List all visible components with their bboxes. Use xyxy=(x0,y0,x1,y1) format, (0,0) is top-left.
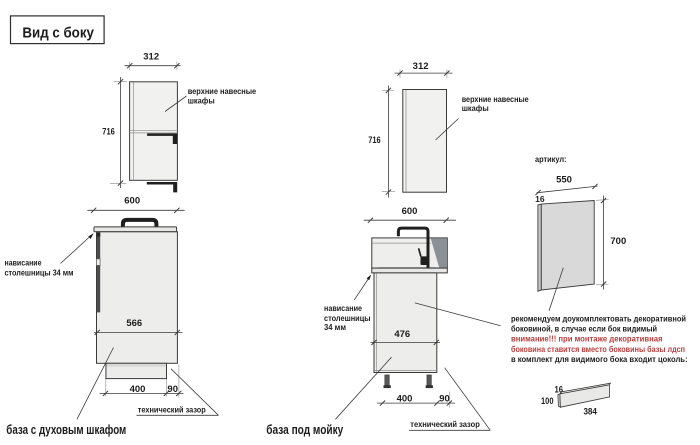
svg-text:рекомендуем доукомплектовать д: рекомендуем доукомплектовать декоративно… xyxy=(511,315,686,324)
svg-text:нависание: нависание xyxy=(324,303,362,313)
svg-text:база под мойку: база под мойку xyxy=(266,423,343,437)
svg-text:Вид с боку: Вид с боку xyxy=(22,25,94,42)
svg-text:312: 312 xyxy=(413,61,429,72)
svg-text:нависание: нависание xyxy=(5,257,42,267)
svg-text:34 мм: 34 мм xyxy=(324,322,346,332)
svg-text:384: 384 xyxy=(583,406,597,417)
svg-text:технический зазор: технический зазор xyxy=(138,405,206,415)
svg-text:шкафы: шкафы xyxy=(462,103,489,113)
svg-text:100: 100 xyxy=(541,396,554,407)
svg-text:шкафы: шкафы xyxy=(188,95,215,105)
svg-text:400: 400 xyxy=(397,394,413,405)
svg-text:столешницы 34 мм: столешницы 34 мм xyxy=(5,268,74,278)
svg-text:476: 476 xyxy=(394,329,410,340)
svg-text:600: 600 xyxy=(402,206,418,217)
svg-text:312: 312 xyxy=(143,51,159,62)
svg-text:600: 600 xyxy=(124,196,140,207)
svg-text:700: 700 xyxy=(610,236,626,247)
svg-text:внимание!!! при монтаже декора: внимание!!! при монтаже декоративная xyxy=(511,335,663,344)
svg-text:400: 400 xyxy=(130,384,146,395)
svg-text:550: 550 xyxy=(556,175,572,186)
svg-text:566: 566 xyxy=(126,318,142,329)
svg-text:боковина ставится вместо боков: боковина ставится вместо боковины базы л… xyxy=(511,345,685,354)
svg-text:в комплект для видимого бока в: в комплект для видимого бока входит цоко… xyxy=(511,355,688,364)
svg-text:716: 716 xyxy=(368,135,381,146)
svg-text:артикул:: артикул: xyxy=(535,154,567,164)
svg-text:716: 716 xyxy=(102,126,115,137)
svg-text:90: 90 xyxy=(167,384,178,395)
svg-text:90: 90 xyxy=(439,394,450,405)
svg-text:боковиной, в случае если бок в: боковиной, в случае если бок видимый xyxy=(511,325,657,334)
svg-text:база с духовым шкафом: база с духовым шкафом xyxy=(6,423,126,437)
svg-text:16: 16 xyxy=(535,194,545,204)
svg-text:16: 16 xyxy=(555,384,564,395)
svg-text:технический зазор: технический зазор xyxy=(410,419,480,429)
